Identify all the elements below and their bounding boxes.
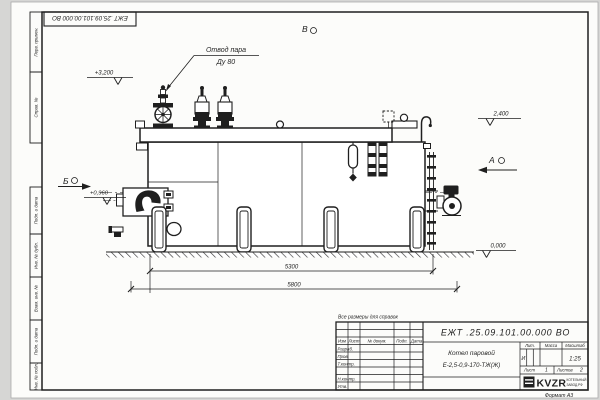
margin-label-sprav: Справ. №	[34, 97, 39, 117]
tb-sheet-label: Лист	[523, 368, 535, 373]
tb-doc-name-2: Е-2,5-0,9-170-ТЖ(Ж)	[443, 363, 500, 369]
support-leg	[324, 207, 338, 252]
format-note: Формат А3	[545, 393, 573, 399]
drawing-sheet: Перв. примен. Справ. № Подп. и дата Инв.…	[0, 0, 600, 400]
margin-label-podp1: Подп. и дата	[34, 196, 39, 224]
step-dome-valve	[400, 114, 407, 121]
logo-subtext-1: КОТЕЛЬНЫЙ	[567, 378, 588, 382]
tb-litera: И	[521, 356, 525, 362]
right-edge-stub	[424, 144, 431, 149]
tb-designation: ЕЖТ .25.09.101.00.000 ВО	[441, 328, 570, 338]
steam-outlet-label-line2: Ду 80	[216, 59, 235, 66]
tb-header-massa: Масса	[545, 343, 558, 348]
view-letter-b: Б	[63, 176, 69, 186]
tb-header-dokum: № докум.	[368, 339, 387, 344]
ground-hatch	[106, 253, 474, 258]
valve-column-1	[368, 142, 376, 176]
logo-subtext-2: ЗАВОД.РФ	[567, 383, 584, 387]
tb-row-nkontr: Н.контр.	[338, 377, 356, 382]
margin-label-invpodl: Инв. № подл.	[34, 363, 39, 390]
valve-column-2	[379, 142, 387, 176]
logo-text: KVZR	[537, 378, 567, 390]
tb-sheets-num: 2	[579, 368, 583, 374]
tb-header-list: Лист	[347, 339, 359, 344]
margin-label-invdubl: Инв. № дубл.	[34, 242, 39, 269]
view-letter-v: В	[302, 24, 308, 34]
tb-doc-name-1: Котел паровой	[448, 349, 495, 357]
dimension-5300-value: 5300	[285, 265, 299, 271]
deck-vent-fitting	[277, 121, 284, 128]
support-leg	[152, 207, 166, 252]
reference-note: Все размеры для справок	[338, 315, 399, 321]
boiler-deck	[140, 128, 392, 142]
elevation-0960-value: +0,960	[90, 191, 109, 197]
tb-row-tkontr: Т.контр.	[338, 362, 355, 367]
margin-label-podp2: Подп. и дата	[34, 327, 39, 355]
logo-mark	[524, 377, 535, 388]
ground	[106, 252, 474, 258]
deck-step	[392, 121, 417, 128]
elevation-0000-value: 0,000	[490, 244, 506, 250]
steam-outlet-label-line1: Отвод пара	[206, 46, 246, 54]
dimension-5800-value: 5800	[287, 283, 301, 289]
tb-header-lit: Лит.	[524, 343, 535, 348]
margin-label-perv: Перв. примен.	[34, 27, 39, 56]
elevation-2400-value: 2,400	[492, 112, 509, 118]
tb-sheet-num: 1	[545, 368, 548, 374]
tb-row-utv: Утв.	[338, 384, 348, 389]
tb-scale-value: 1:25	[569, 357, 581, 363]
tb-header-izm: Изм	[338, 339, 346, 344]
tb-sheets-label: Листов	[556, 368, 573, 373]
manhole-oval	[167, 223, 181, 236]
elevation-3200-value: +3,200	[95, 71, 114, 77]
view-letter-a: А	[488, 155, 495, 165]
support-leg	[237, 207, 251, 252]
body-fitting-topleft	[137, 143, 148, 150]
margin-label-vzam: Взам. инв. №	[34, 285, 39, 312]
tb-row-razrab: Разраб.	[338, 347, 354, 352]
deck-left-bracket	[136, 121, 145, 128]
tb-row-prov: Пров.	[338, 354, 349, 359]
support-leg	[410, 207, 424, 252]
boiler-drawing-svg: Перв. примен. Справ. № Подп. и дата Инв.…	[0, 0, 600, 400]
tb-header-data: Дата	[410, 339, 423, 344]
tb-header-scale: Масштаб	[565, 343, 585, 348]
stamp-designation: ЕЖТ .25.09.101.00.000 ВО	[52, 14, 128, 21]
tb-header-podp: Подп.	[396, 339, 407, 344]
vent-pipe-end	[429, 124, 432, 127]
